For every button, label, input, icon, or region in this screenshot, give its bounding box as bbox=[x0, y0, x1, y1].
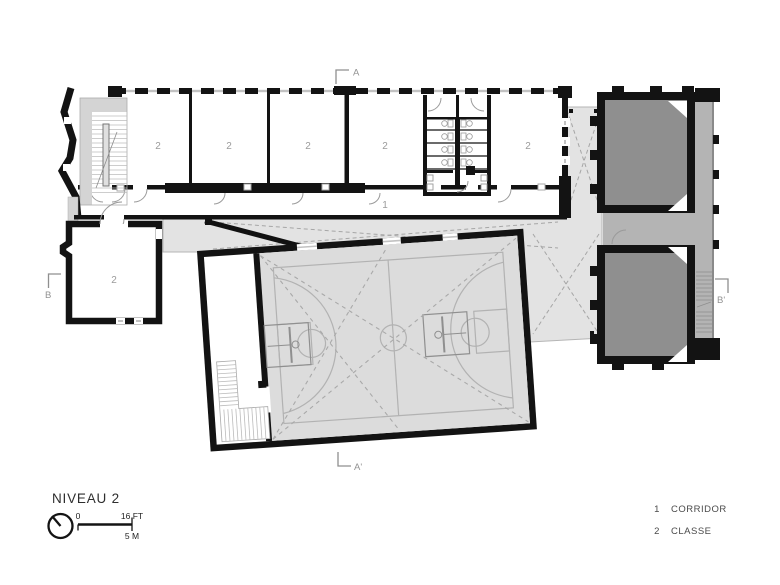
section-marker-a-prime: A' bbox=[338, 452, 362, 473]
scale-metric: 5 M bbox=[125, 531, 139, 541]
corridor-south-wall bbox=[74, 215, 567, 220]
room-label-corridor: 1 bbox=[382, 200, 388, 211]
floor-plan-page: 2 2 2 2 2 bbox=[0, 0, 780, 585]
legend-corridor-num: 1 bbox=[654, 504, 660, 515]
section-label-b: B bbox=[45, 290, 51, 301]
section-label-b-prime: B' bbox=[717, 295, 725, 306]
legend: 1 CORRIDOR 2 CLASSE bbox=[654, 504, 727, 537]
bathroom-block bbox=[423, 95, 491, 196]
section-label-a-prime: A' bbox=[354, 462, 362, 473]
floor-plan-canvas: 2 2 2 2 2 bbox=[0, 0, 780, 585]
north-arrow-icon bbox=[49, 514, 73, 538]
room-west-walls bbox=[63, 224, 159, 321]
legend-classe-num: 2 bbox=[654, 526, 660, 537]
dark-room-1 bbox=[605, 100, 687, 205]
room-label-classe: 2 bbox=[382, 141, 388, 152]
room-label-classe: 2 bbox=[155, 141, 161, 152]
section-marker-b-prime: B' bbox=[715, 279, 728, 306]
room-label-classe: 2 bbox=[111, 275, 117, 286]
legend-classe-label: CLASSE bbox=[671, 526, 712, 537]
section-label-a: A bbox=[353, 68, 360, 79]
room-label-classe: 2 bbox=[226, 141, 232, 152]
thick-wall-bar bbox=[165, 183, 365, 193]
legend-corridor-label: CORRIDOR bbox=[671, 504, 727, 515]
scale-zero: 0 bbox=[76, 511, 81, 521]
classroom-wing: 2 2 2 2 2 bbox=[78, 86, 572, 218]
page-title: NIVEAU 2 bbox=[52, 491, 120, 506]
east-block bbox=[590, 86, 720, 370]
dark-room-2 bbox=[605, 253, 687, 356]
title-block: NIVEAU 2 0 16 FT 5 M bbox=[49, 491, 144, 541]
east-connector bbox=[603, 213, 695, 245]
scale-bar: 0 16 FT 5 M bbox=[76, 511, 143, 541]
east-windows bbox=[560, 118, 570, 165]
section-marker-a: A bbox=[336, 68, 360, 85]
partition-walls bbox=[189, 92, 349, 187]
gymnasium bbox=[197, 229, 537, 452]
section-marker-b: B bbox=[45, 274, 61, 301]
room-label-classe: 2 bbox=[305, 141, 311, 152]
room-label-classe: 2 bbox=[525, 141, 531, 152]
